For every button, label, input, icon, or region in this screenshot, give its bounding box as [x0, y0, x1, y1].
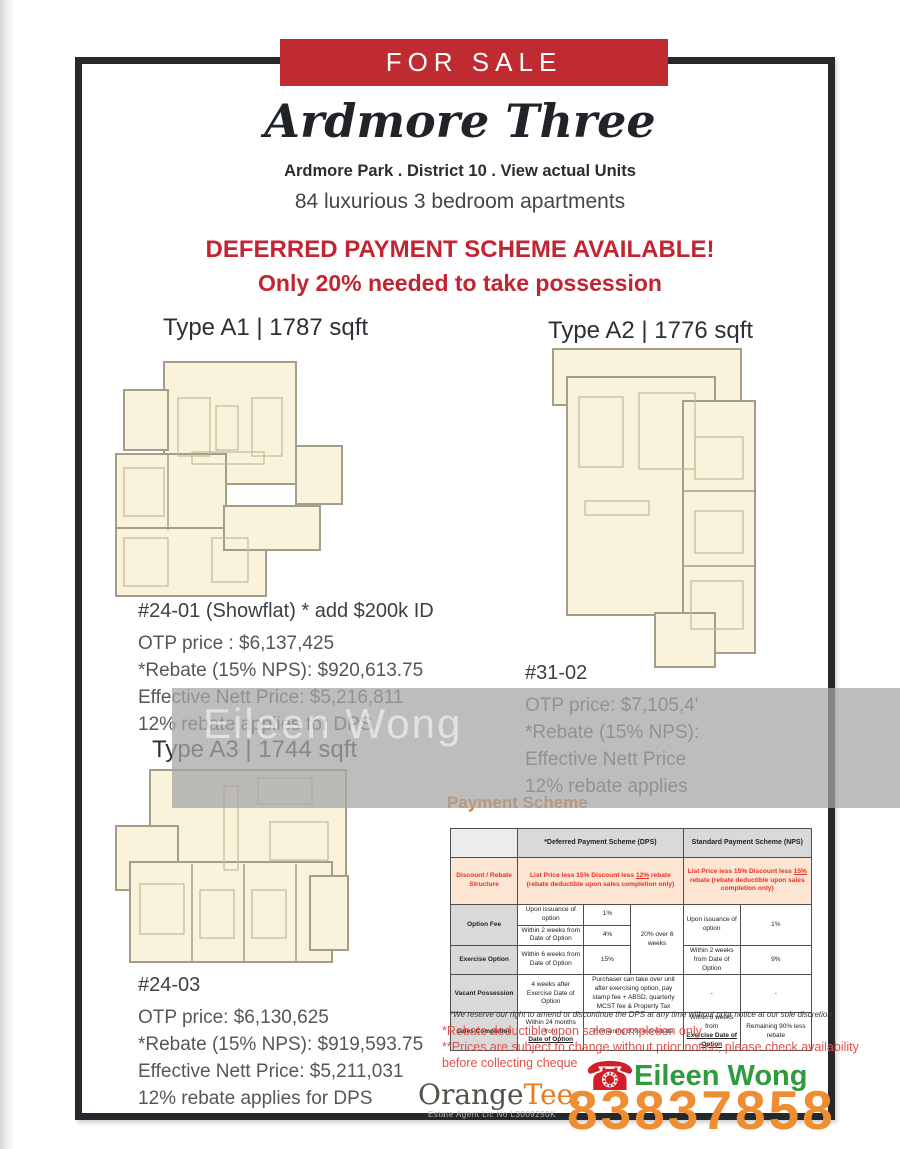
exercise-nps-desc: Within 2 weeks from Date of Option — [683, 946, 740, 975]
discount-nps-pct: 15% — [794, 868, 807, 875]
unit-3102-number: #31-02 — [525, 660, 699, 687]
unit-2403-nett: Effective Nett Price: $5,211,031 — [138, 1058, 423, 1085]
option-fee-label: Option Fee — [451, 905, 518, 946]
page-title: Ardmore Three — [90, 94, 830, 148]
vacant-nps-desc: - — [683, 975, 740, 1013]
discount-dps-pre: List Price less 15% Discount less — [530, 872, 636, 879]
unit-2403-otp: OTP price: $6,130,625 — [138, 1004, 423, 1031]
exercise-option-label: Exercise Option — [451, 946, 518, 975]
unit-2401-rebate: *Rebate (15% NPS): $920,613.75 — [138, 657, 434, 684]
exercise-dps-desc: Within 6 weeks from Date of Option — [518, 946, 584, 975]
unit-2403-dps: 12% rebate applies for DPS — [138, 1085, 423, 1112]
discount-dps-cell: List Price less 15% Discount less 12% re… — [518, 858, 683, 905]
promo-line-1: DEFERRED PAYMENT SCHEME AVAILABLE! — [90, 236, 830, 264]
discount-nps-pre: List Price less 15% Discount less — [688, 868, 794, 875]
tagline: 84 luxurious 3 bedroom apartments — [90, 190, 830, 214]
orangetee-logo: OrangeTee. — [418, 1078, 582, 1111]
page-edge-strip — [0, 0, 14, 1149]
for-sale-banner: FOR SALE — [280, 39, 668, 86]
option-fee-dps1-desc: Upon issuance of option — [518, 905, 584, 926]
vacant-dps-desc: 4 weeks after Exercise Date of Option — [518, 975, 584, 1013]
discount-nps-cell: List Price less 15% Discount less 15% re… — [683, 858, 811, 905]
table-corner-cell — [451, 829, 518, 858]
flyer-page: FOR SALE Ardmore Three Ardmore Park . Di… — [0, 0, 900, 1149]
vacant-possession-label: Vacant Possession — [451, 975, 518, 1013]
discount-dps-pct: 12% — [636, 872, 649, 879]
unit-2403-number: #24-03 — [138, 972, 423, 999]
floorplan-a1 — [112, 360, 347, 602]
exercise-nps-pct: 9% — [740, 946, 811, 975]
vacant-dps-note: Purchaser can take over unit after exerc… — [584, 975, 683, 1013]
discount-row-label: Discount / Rebate Structure — [451, 858, 518, 905]
orangetee-logo-orange: Orange — [418, 1078, 524, 1111]
option-fee-dps1-pct: 1% — [584, 905, 631, 926]
location-subtitle: Ardmore Park . District 10 . View actual… — [90, 162, 830, 181]
unit-2401-otp: OTP price : $6,137,425 — [138, 630, 434, 657]
dps-column-header: *Deferred Payment Scheme (DPS) — [518, 829, 683, 858]
unit-2401-number: #24-01 (Showflat) * add $200k ID — [138, 598, 434, 625]
note-rebate: *Rebate deductible upon sales completion… — [442, 1023, 874, 1039]
agency-license: Estate Agent Lic No L3009250K — [428, 1110, 556, 1119]
table-footnote: *We reserve our right to amend or discon… — [450, 1010, 850, 1019]
option-fee-nps-desc: Upon issuance of option — [683, 905, 740, 946]
type-a1-label: Type A1 | 1787 sqft — [163, 314, 368, 342]
option-fee-dps2-desc: Within 2 weeks from Date of Option — [518, 925, 584, 946]
option-fee-dps-total: 20% over 6 weeks — [631, 905, 683, 975]
vacant-nps-pct: - — [740, 975, 811, 1013]
unit-2403-details: #24-03 OTP price: $6,130,625 *Rebate (15… — [138, 972, 423, 1112]
telephone-icon: ☎ — [585, 1054, 635, 1100]
exercise-dps-pct: 15% — [584, 946, 631, 975]
floorplan-a2 — [543, 341, 763, 673]
discount-nps-post: rebate (rebate deductible upon sales com… — [690, 877, 805, 893]
unit-2403-rebate: *Rebate (15% NPS): $919,593.75 — [138, 1031, 423, 1058]
promo-line-2: Only 20% needed to take possession — [90, 270, 830, 297]
option-fee-dps2-pct: 4% — [584, 925, 631, 946]
watermark-text: Eileen Wong — [203, 700, 462, 748]
nps-column-header: Standard Payment Scheme (NPS) — [683, 829, 811, 858]
option-fee-nps-pct: 1% — [740, 905, 811, 946]
